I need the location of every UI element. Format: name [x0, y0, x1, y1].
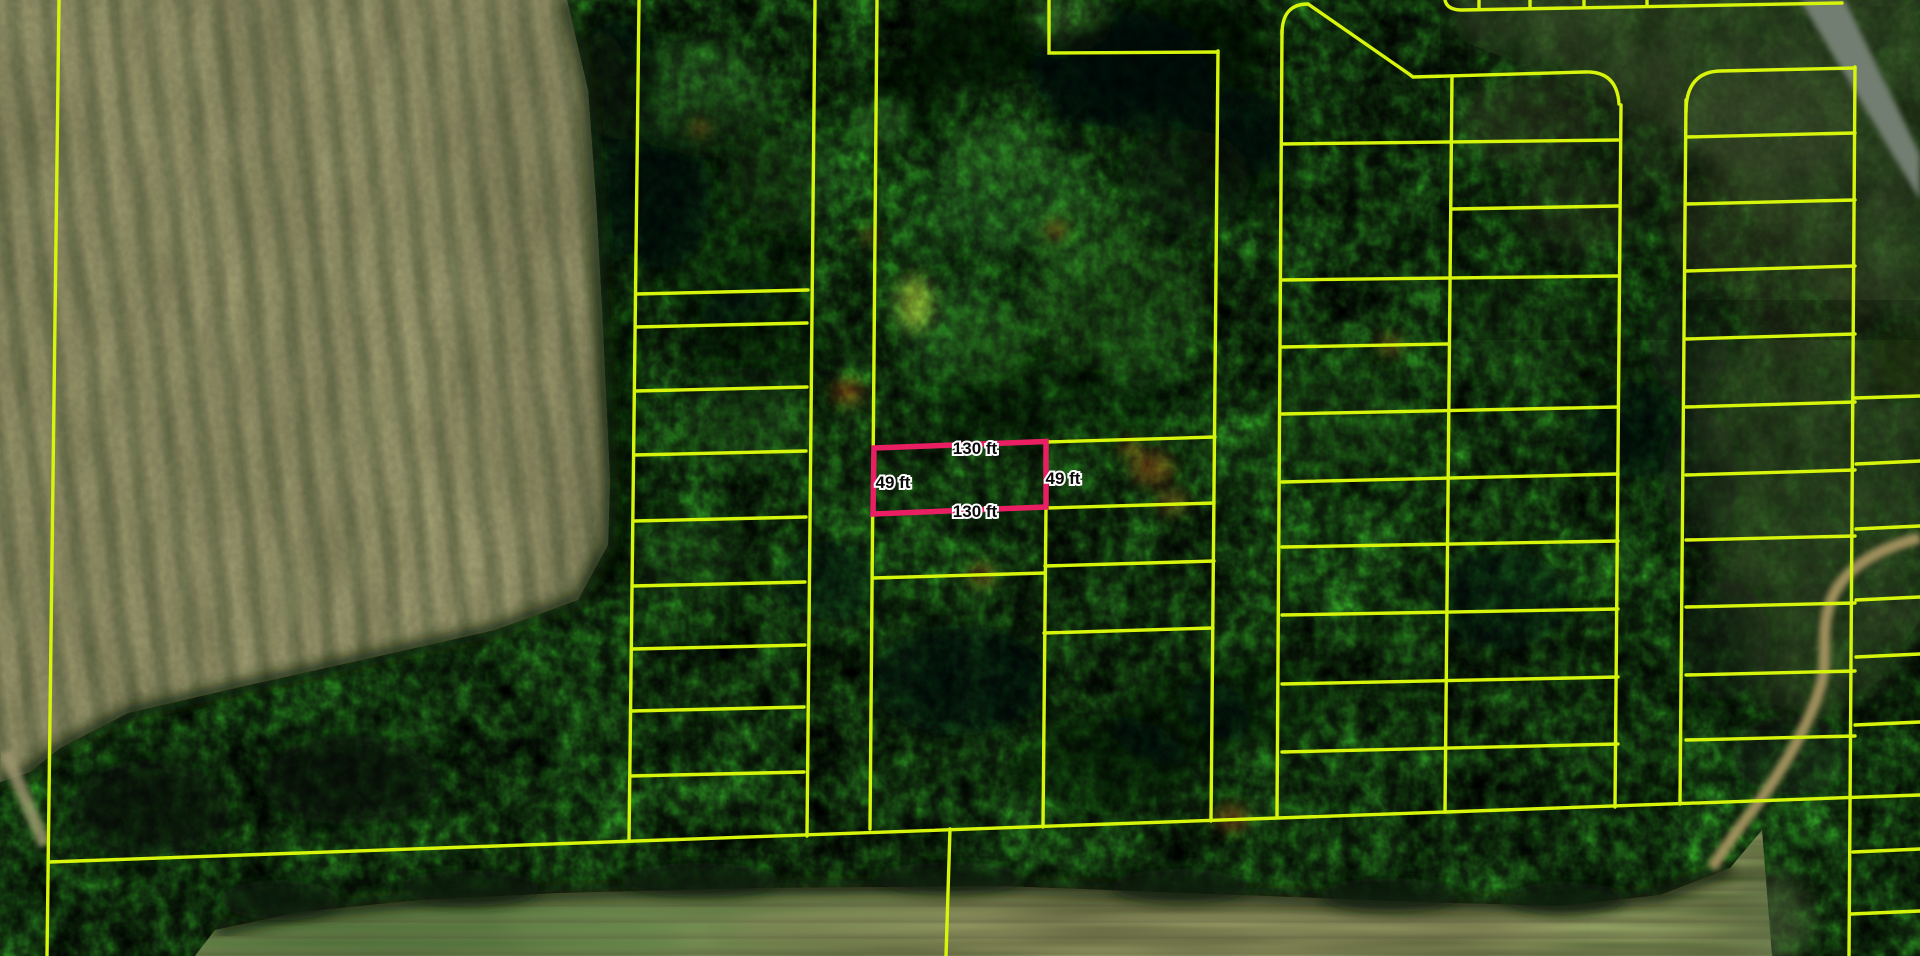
svg-text:130 ft: 130 ft	[953, 502, 998, 521]
svg-text:130 ft: 130 ft	[953, 439, 998, 458]
svg-text:49 ft: 49 ft	[876, 473, 911, 492]
svg-text:49 ft: 49 ft	[1046, 469, 1081, 488]
